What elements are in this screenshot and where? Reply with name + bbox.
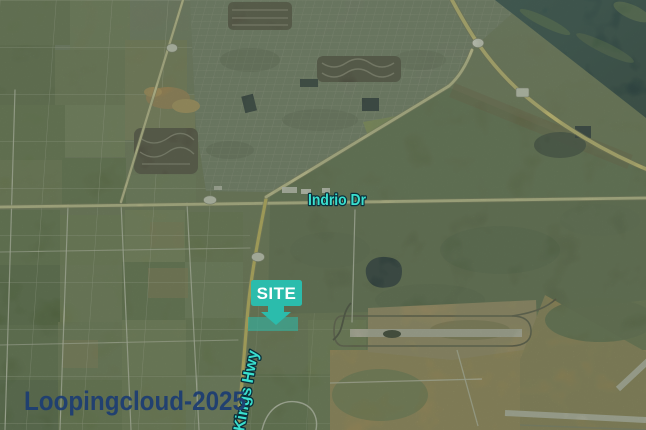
site-marker: SITE (248, 280, 302, 331)
site-label: SITE (257, 284, 297, 303)
aerial-map: SITE Indrio Dr Kings Hwy Loopingcloud-20… (0, 0, 646, 430)
photo-grain (0, 0, 646, 430)
aerial-map-image: SITE Indrio Dr Kings Hwy Loopingcloud-20… (0, 0, 646, 430)
indrio-dr-label: Indrio Dr (308, 192, 366, 209)
watermark: Loopingcloud-2025 (24, 386, 246, 416)
